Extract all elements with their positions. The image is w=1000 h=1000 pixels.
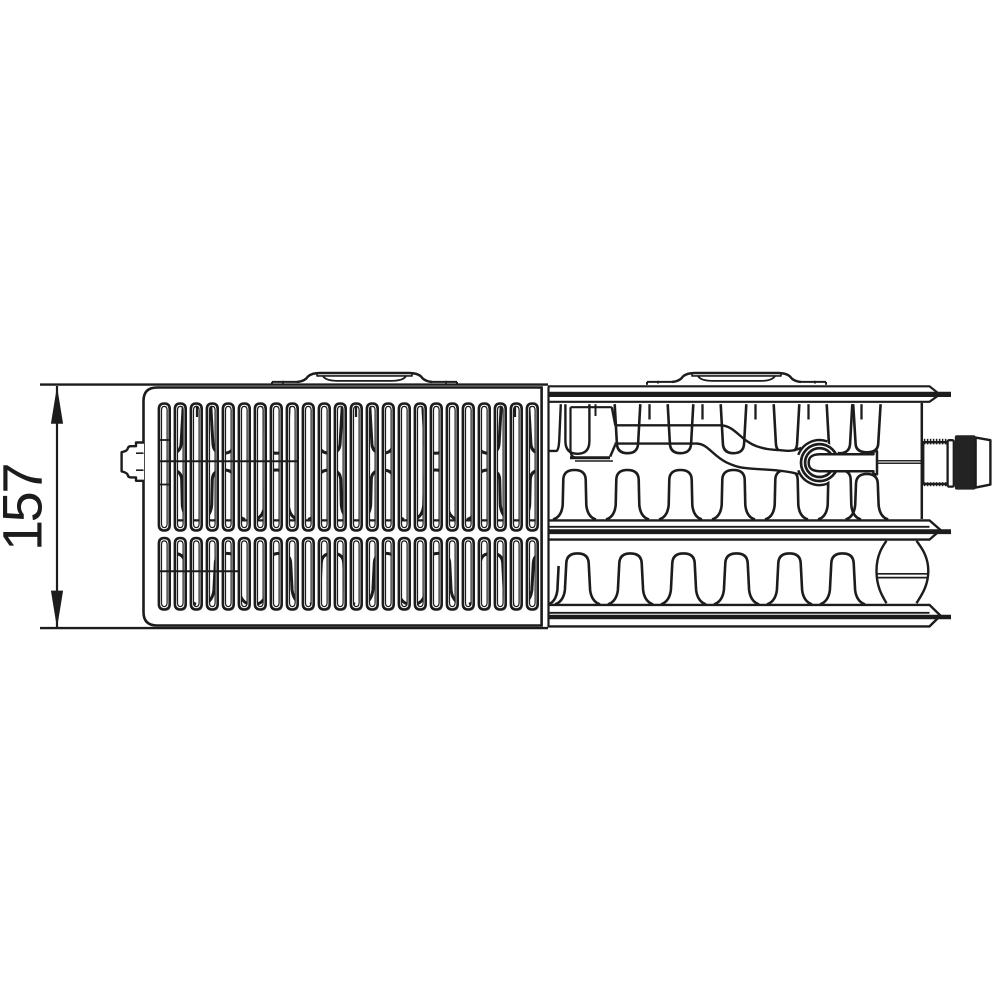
svg-text:157: 157 bbox=[0, 465, 54, 551]
